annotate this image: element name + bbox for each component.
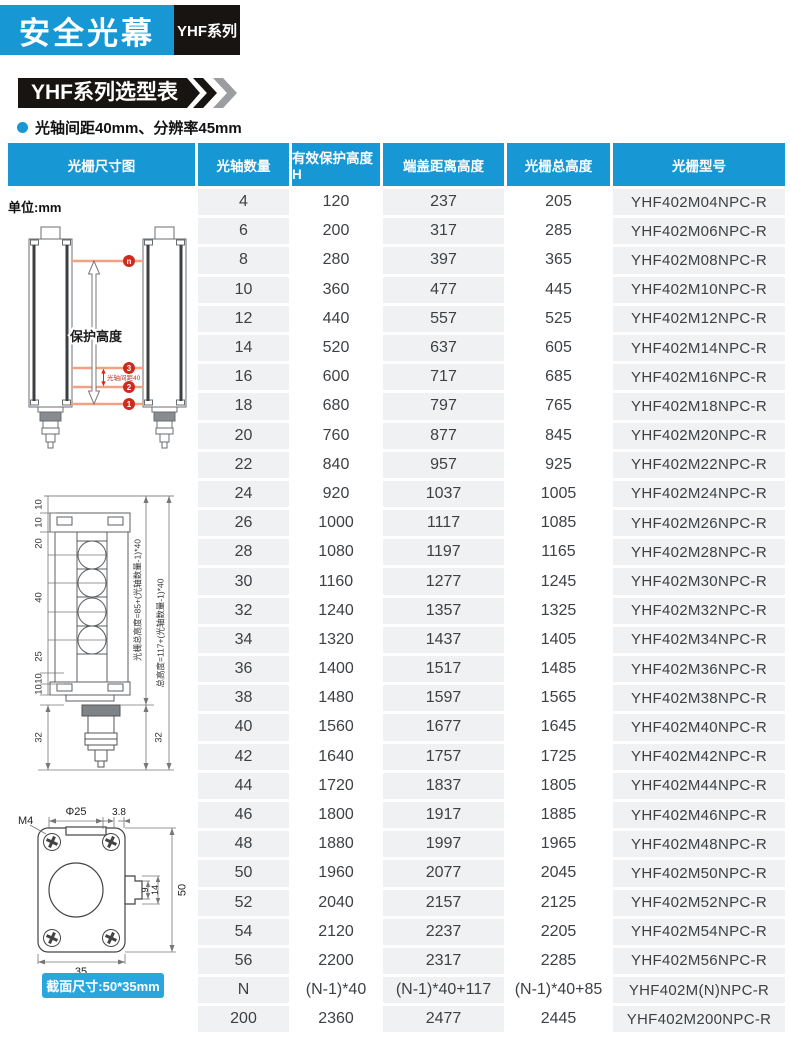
section-banner: YHF系列选型表	[18, 78, 237, 108]
cell-protect-height: (N-1)*40	[292, 977, 380, 1003]
cell-protect-height: 1800	[292, 802, 380, 828]
cell-model: YHF402M16NPC-R	[613, 364, 785, 390]
cell-model: YHF402M46NPC-R	[613, 802, 785, 828]
dim-32-right: 32	[154, 732, 165, 743]
cross-section-diagram: M4 Φ25 3.8 9 14 50 35	[8, 796, 195, 978]
cell-model: YHF402M50NPC-R	[613, 860, 785, 886]
cell-model: YHF402M56NPC-R	[613, 948, 785, 974]
cell-axis-count: 48	[198, 831, 289, 857]
cell-total-height: 2445	[507, 1006, 610, 1032]
cell-axis-count: 10	[198, 277, 289, 303]
cell-total-height: 1565	[507, 685, 610, 711]
cell-model: YHF402M200NPC-R	[613, 1006, 785, 1032]
cell-endcap-height: 717	[383, 364, 504, 390]
cell-axis-count: 46	[198, 802, 289, 828]
cell-protect-height: 840	[292, 452, 380, 478]
cell-protect-height: 1960	[292, 860, 380, 886]
cell-axis-count: 14	[198, 335, 289, 361]
cell-protect-height: 200	[292, 218, 380, 244]
cell-total-height: (N-1)*40+85	[507, 977, 610, 1003]
cell-model: YHF402M12NPC-R	[613, 306, 785, 332]
cell-model: YHF402M32NPC-R	[613, 598, 785, 624]
cell-axis-count: 6	[198, 218, 289, 244]
cell-model: YHF402M18NPC-R	[613, 393, 785, 419]
cell-endcap-height: 557	[383, 306, 504, 332]
cell-endcap-height: 1437	[383, 627, 504, 653]
cell-axis-count: 34	[198, 627, 289, 653]
marker-3: 3	[127, 364, 132, 373]
cell-endcap-height: 1677	[383, 714, 504, 740]
phi25-label: Φ25	[65, 806, 86, 818]
cell-protect-height: 1480	[292, 685, 380, 711]
cell-protect-height: 1080	[292, 539, 380, 565]
cell-axis-count: 18	[198, 393, 289, 419]
cell-total-height: 605	[507, 335, 610, 361]
cell-protect-height: 1560	[292, 714, 380, 740]
table-body: 单位:mm	[8, 189, 785, 1032]
cell-model: YHF402M42NPC-R	[613, 744, 785, 770]
cell-total-height: 1005	[507, 481, 610, 507]
cell-endcap-height: 1997	[383, 831, 504, 857]
cell-protect-height: 120	[292, 189, 380, 215]
cell-total-height: 1165	[507, 539, 610, 565]
cell-endcap-height: 2477	[383, 1006, 504, 1032]
cell-protect-height: 1640	[292, 744, 380, 770]
cell-protect-height: 2120	[292, 919, 380, 945]
cell-total-height: 1085	[507, 510, 610, 536]
cell-protect-height: 520	[292, 335, 380, 361]
cell-axis-count: 200	[198, 1006, 289, 1032]
cell-total-height: 1485	[507, 656, 610, 682]
cell-axis-count: 22	[198, 452, 289, 478]
cell-total-height: 1885	[507, 802, 610, 828]
cell-total-height: 1805	[507, 773, 610, 799]
cell-protect-height: 2360	[292, 1006, 380, 1032]
notch-14-label: 14	[150, 885, 160, 895]
cell-total-height: 765	[507, 393, 610, 419]
cell-total-height: 2205	[507, 919, 610, 945]
page-title: 安全光幕	[0, 5, 174, 55]
cell-endcap-height: 637	[383, 335, 504, 361]
cell-protect-height: 360	[292, 277, 380, 303]
cell-total-height: 2045	[507, 860, 610, 886]
beam-pitch-dimension: 光轴间距40	[101, 369, 140, 387]
cell-axis-count: 50	[198, 860, 289, 886]
cell-axis-count: 28	[198, 539, 289, 565]
col-header-axis-count: 光轴数量	[198, 143, 289, 186]
cell-total-height: 1645	[507, 714, 610, 740]
section-banner-label: YHF系列选型表	[18, 78, 200, 108]
dim-10b: 10	[34, 517, 45, 528]
cell-total-height: 1725	[507, 744, 610, 770]
table-header-row: 光栅尺寸图 光轴数量 有效保护高度H 端盖距离高度 光栅总高度 光栅型号	[8, 143, 785, 186]
total-height-formula: 总高度=117+(光轴数量-1)*40	[156, 578, 166, 687]
cell-protect-height: 600	[292, 364, 380, 390]
cell-model: YHF402M(N)NPC-R	[613, 977, 785, 1003]
dim-10c: 10	[34, 673, 45, 684]
slot-38-label: 3.8	[112, 807, 126, 818]
cell-total-height: 365	[507, 247, 610, 273]
protection-height-diagram: 保护高度 光轴间距40 n 3 2 1	[8, 225, 195, 475]
cell-axis-count: 40	[198, 714, 289, 740]
cell-model: YHF402M04NPC-R	[613, 189, 785, 215]
cell-protect-height: 760	[292, 423, 380, 449]
cell-axis-count: 24	[198, 481, 289, 507]
cell-total-height: 2285	[507, 948, 610, 974]
cell-protect-height: 1880	[292, 831, 380, 857]
cell-model: YHF402M20NPC-R	[613, 423, 785, 449]
cell-protect-height: 1320	[292, 627, 380, 653]
cell-protect-height: 1240	[292, 598, 380, 624]
cell-protect-height: 2040	[292, 890, 380, 916]
cell-total-height: 285	[507, 218, 610, 244]
cell-axis-count: 42	[198, 744, 289, 770]
dim-40: 40	[34, 592, 45, 603]
height-50-label: 50	[177, 884, 189, 896]
cell-model: YHF402M48NPC-R	[613, 831, 785, 857]
page-header: 安全光幕 YHF系列	[0, 5, 240, 55]
table-rows: 4 120 237 205 YHF402M04NPC-R 6 200 317 2…	[198, 189, 785, 1032]
cell-model: YHF402M08NPC-R	[613, 247, 785, 273]
dim-20: 20	[34, 538, 45, 549]
cell-protect-height: 920	[292, 481, 380, 507]
cell-endcap-height: 877	[383, 423, 504, 449]
cell-total-height: 205	[507, 189, 610, 215]
cell-endcap-height: 1917	[383, 802, 504, 828]
cell-endcap-height: 1517	[383, 656, 504, 682]
cell-endcap-height: 1597	[383, 685, 504, 711]
cell-endcap-height: 2077	[383, 860, 504, 886]
cell-model: YHF402M14NPC-R	[613, 335, 785, 361]
notch-9-label: 9	[140, 887, 150, 892]
cell-model: YHF402M38NPC-R	[613, 685, 785, 711]
cell-axis-count: 30	[198, 568, 289, 594]
cell-endcap-height: 2237	[383, 919, 504, 945]
cell-total-height: 925	[507, 452, 610, 478]
cell-model: YHF402M30NPC-R	[613, 568, 785, 594]
cell-endcap-height: 1197	[383, 539, 504, 565]
tower-left	[29, 227, 72, 448]
front-view-diagram: 10 10 20 40 25 10 10 32 32 光栅总高度=85+(光轴数…	[8, 487, 195, 799]
cell-protect-height: 2200	[292, 948, 380, 974]
cell-model: YHF402M40NPC-R	[613, 714, 785, 740]
cell-protect-height: 280	[292, 247, 380, 273]
dimension-diagrams-cell: 单位:mm	[8, 189, 195, 1032]
col-header-total-height: 光栅总高度	[507, 143, 610, 186]
beam-pitch-label: 光轴间距40	[107, 373, 141, 382]
cell-total-height: 1965	[507, 831, 610, 857]
cell-protect-height: 1160	[292, 568, 380, 594]
bullet-icon	[17, 122, 28, 133]
sensor-body	[44, 496, 174, 701]
cell-axis-count: N	[198, 977, 289, 1003]
cell-endcap-height: (N-1)*40+117	[383, 977, 504, 1003]
cell-total-height: 1245	[507, 568, 610, 594]
cell-protect-height: 680	[292, 393, 380, 419]
beam-markers: n 3 2 1	[123, 255, 135, 410]
cell-model: YHF402M26NPC-R	[613, 510, 785, 536]
cell-model: YHF402M10NPC-R	[613, 277, 785, 303]
cell-model: YHF402M24NPC-R	[613, 481, 785, 507]
dim-10d: 10	[34, 684, 45, 695]
dim-10a: 10	[34, 499, 45, 510]
cell-endcap-height: 957	[383, 452, 504, 478]
cell-endcap-height: 1277	[383, 568, 504, 594]
cell-protect-height: 440	[292, 306, 380, 332]
cell-axis-count: 38	[198, 685, 289, 711]
cell-protect-height: 1000	[292, 510, 380, 536]
spec-bullet-text: 光轴间距40mm、分辨率45mm	[35, 117, 242, 138]
cell-total-height: 1325	[507, 598, 610, 624]
cell-endcap-height: 397	[383, 247, 504, 273]
cell-model: YHF402M36NPC-R	[613, 656, 785, 682]
cell-model: YHF402M34NPC-R	[613, 627, 785, 653]
dim-25: 25	[34, 651, 45, 662]
cell-axis-count: 8	[198, 247, 289, 273]
cell-axis-count: 26	[198, 510, 289, 536]
cell-protect-height: 1400	[292, 656, 380, 682]
cell-protect-height: 1720	[292, 773, 380, 799]
tower-right	[143, 227, 186, 448]
series-badge: YHF系列	[174, 5, 240, 55]
cell-total-height: 2125	[507, 890, 610, 916]
cell-endcap-height: 2317	[383, 948, 504, 974]
cell-model: YHF402M28NPC-R	[613, 539, 785, 565]
unit-label: 单位:mm	[8, 197, 61, 216]
cell-axis-count: 32	[198, 598, 289, 624]
cell-model: YHF402M52NPC-R	[613, 890, 785, 916]
cell-total-height: 845	[507, 423, 610, 449]
cell-axis-count: 44	[198, 773, 289, 799]
cell-axis-count: 12	[198, 306, 289, 332]
cell-axis-count: 54	[198, 919, 289, 945]
m4-label: M4	[18, 815, 33, 827]
cell-model: YHF402M22NPC-R	[613, 452, 785, 478]
col-header-endcap-height: 端盖距离高度	[383, 143, 504, 186]
cell-total-height: 1405	[507, 627, 610, 653]
marker-1: 1	[127, 400, 132, 409]
cell-total-height: 685	[507, 364, 610, 390]
col-header-protect-height: 有效保护高度H	[292, 143, 380, 186]
cell-endcap-height: 797	[383, 393, 504, 419]
cell-model: YHF402M06NPC-R	[613, 218, 785, 244]
grating-total-height-formula: 光栅总高度=85+(光轴数量-1)*40	[133, 539, 143, 661]
cell-axis-count: 20	[198, 423, 289, 449]
marker-n: n	[127, 257, 132, 266]
cell-axis-count: 52	[198, 890, 289, 916]
cell-model: YHF402M54NPC-R	[613, 919, 785, 945]
col-header-dimension-diagram: 光栅尺寸图	[8, 143, 195, 186]
cell-endcap-height: 317	[383, 218, 504, 244]
cell-total-height: 445	[507, 277, 610, 303]
cell-axis-count: 36	[198, 656, 289, 682]
marker-2: 2	[127, 383, 132, 392]
cell-endcap-height: 1117	[383, 510, 504, 536]
cross-section-caption: 截面尺寸:50*35mm	[42, 973, 164, 998]
cell-axis-count: 56	[198, 948, 289, 974]
bottom-connector	[82, 705, 120, 767]
cell-axis-count: 16	[198, 364, 289, 390]
cell-endcap-height: 2157	[383, 890, 504, 916]
spec-bullet: 光轴间距40mm、分辨率45mm	[17, 117, 242, 138]
cell-endcap-height: 237	[383, 189, 504, 215]
cell-axis-count: 4	[198, 189, 289, 215]
cell-endcap-height: 477	[383, 277, 504, 303]
cell-endcap-height: 1837	[383, 773, 504, 799]
cell-endcap-height: 1357	[383, 598, 504, 624]
cell-total-height: 525	[507, 306, 610, 332]
cell-endcap-height: 1037	[383, 481, 504, 507]
selection-table: 光栅尺寸图 光轴数量 有效保护高度H 端盖距离高度 光栅总高度 光栅型号 单位:…	[8, 143, 785, 1032]
col-header-model: 光栅型号	[613, 143, 785, 186]
cell-endcap-height: 1757	[383, 744, 504, 770]
cell-model: YHF402M44NPC-R	[613, 773, 785, 799]
protection-height-label: 保护高度	[69, 329, 123, 344]
dim-32-left: 32	[34, 732, 45, 743]
